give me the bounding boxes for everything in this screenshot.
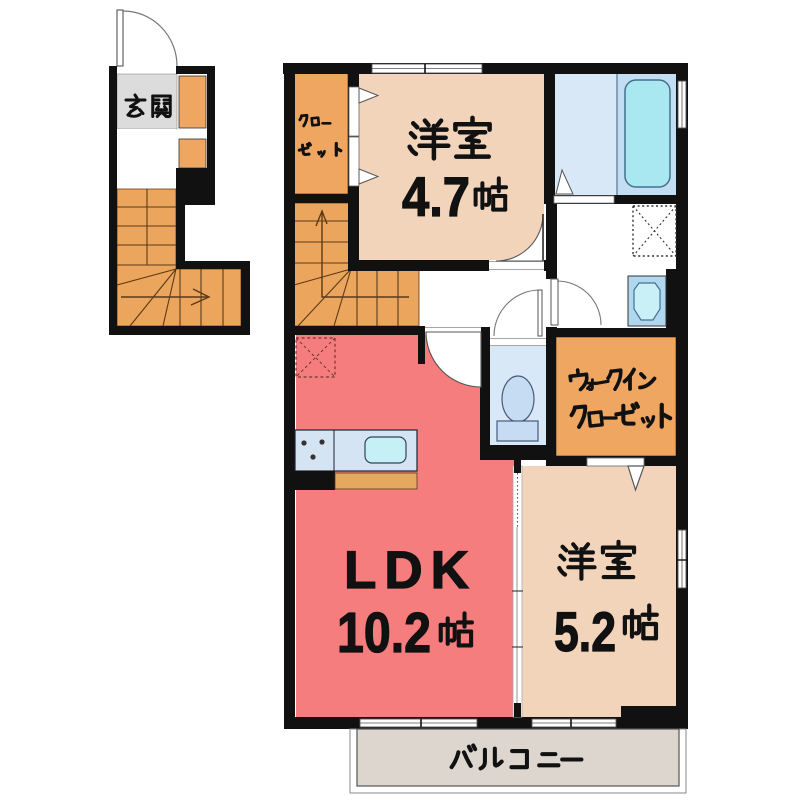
svg-text:5.2: 5.2 <box>554 600 616 663</box>
svg-text:LDK: LDK <box>344 541 477 600</box>
svg-text:10.2: 10.2 <box>337 601 431 665</box>
svg-text:4.7: 4.7 <box>402 165 470 228</box>
